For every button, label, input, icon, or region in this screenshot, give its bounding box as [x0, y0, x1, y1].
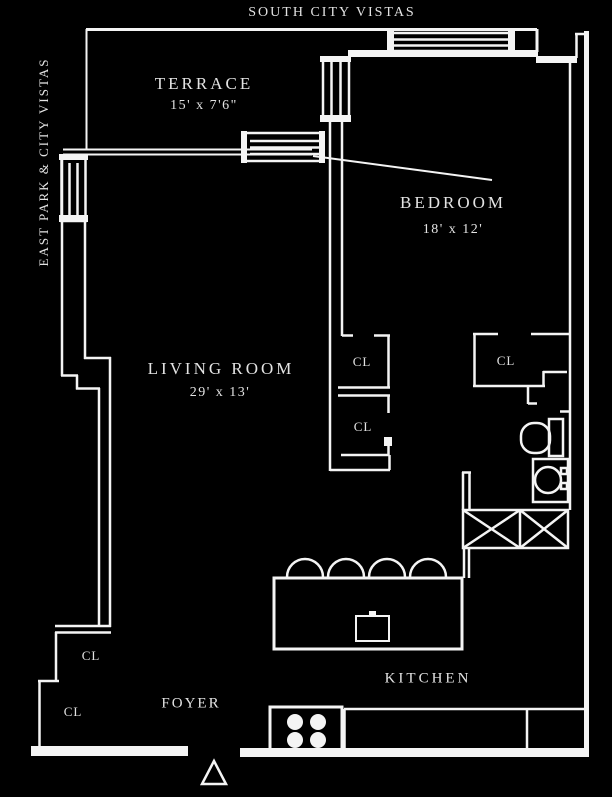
bedroom-west-wall [330, 121, 342, 471]
terrace-door-swing [313, 156, 492, 180]
stove-icon [270, 707, 342, 750]
bar-stools [287, 559, 446, 577]
foyer-label: FOYER [161, 696, 220, 713]
kitchen-lower-counter [344, 709, 585, 748]
terrace-door-window-icon [241, 131, 325, 163]
toilet-icon [521, 419, 563, 456]
sink-icon [533, 459, 568, 502]
exposure-label-left: EAST PARK & CITY VISTAS [36, 58, 52, 267]
bedroom-label: BEDROOM [400, 193, 506, 213]
cabinet-xbox [462, 472, 568, 578]
bedroom-top-window-icon [387, 31, 515, 53]
terrace-label: TERRACE [155, 74, 253, 94]
entry-marker-icon [202, 761, 226, 784]
closet-label-foyer-lower: CL [64, 704, 83, 720]
closet-label-foyer-upper: CL [82, 648, 101, 664]
living-room-label: LIVING ROOM [148, 359, 295, 379]
terrace-dimensions: 15' x 7'6" [170, 98, 238, 114]
closet-label-bedroom: CL [497, 353, 516, 369]
bedroom-dimensions: 18' x 12' [423, 222, 484, 238]
closet-label-living-upper: CL [353, 354, 372, 370]
kitchen-label: KITCHEN [385, 671, 472, 688]
exposure-label-top: SOUTH CITY VISTAS [248, 5, 415, 21]
bedroom-west-window-icon [320, 56, 351, 122]
bedroom-closet [473, 334, 570, 387]
closet-label-living-lower: CL [354, 419, 373, 435]
floor-plan: SOUTH CITY VISTAS EAST PARK & CITY VISTA… [0, 0, 612, 797]
kitchen-peninsula-counter [274, 578, 462, 649]
living-room-dimensions: 29' x 13' [190, 385, 251, 401]
left-wall-window-icon [59, 154, 88, 222]
floor-plan-drawing [0, 0, 612, 797]
